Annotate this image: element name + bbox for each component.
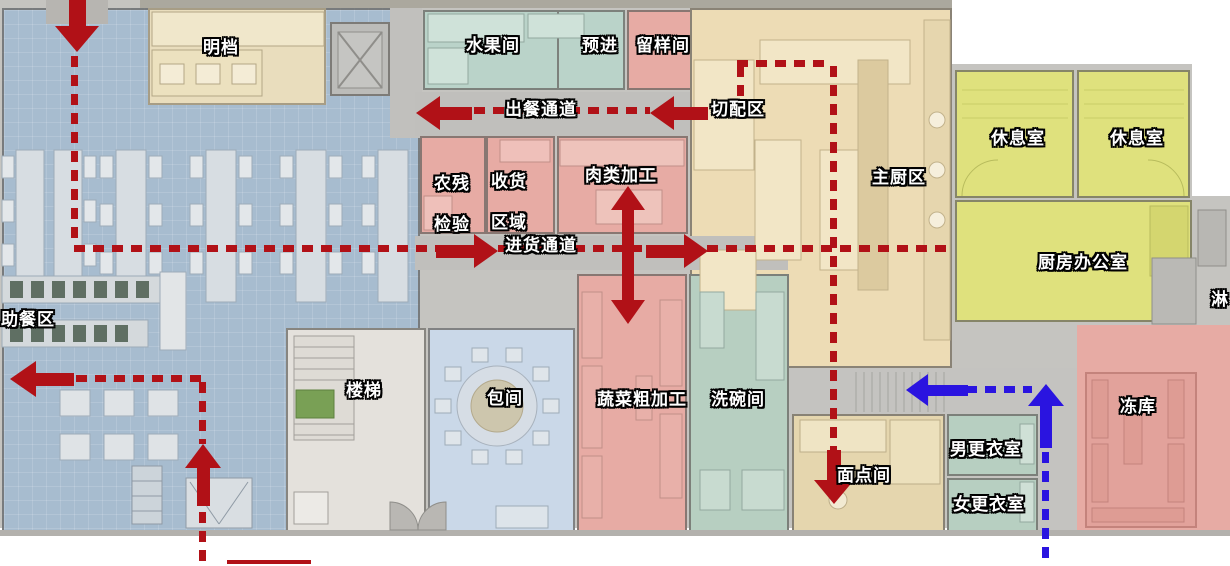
room-label-kitchen-office: 厨房办公室 xyxy=(1038,253,1128,273)
room-label-sample-retention: 留样间 xyxy=(636,36,690,56)
wall-fruit-divider xyxy=(557,12,559,88)
room-label-pastry: 面点间 xyxy=(837,466,891,486)
room-label-dishwashing: 洗碗间 xyxy=(711,390,765,410)
room-label-stairs: 楼梯 xyxy=(346,381,382,401)
zone-label-main-kitchen: 主厨区 xyxy=(872,168,926,188)
room-label-meat: 肉类加工 xyxy=(585,166,657,186)
blue-dashed-horizontal xyxy=(966,386,1032,393)
red-dashed-dining-horizontal xyxy=(76,375,202,382)
room-label-fruit: 水果间 xyxy=(466,36,520,56)
floor-plan: 明档 水果间 预进 留样间 出餐通道 切配区 农残 检验 收货 区域 肉类加工 … xyxy=(0,0,1230,566)
red-dashed-entry-vertical xyxy=(71,56,78,246)
room-label-men-changing: 男更衣室 xyxy=(950,440,1022,460)
room-label-open-counter: 明档 xyxy=(203,38,239,58)
blue-arrow-left-icon xyxy=(906,374,968,406)
red-dashed-cutting-top xyxy=(737,60,831,67)
red-arrow-left-serving-1-icon xyxy=(416,96,472,130)
room-label-private-dining: 包间 xyxy=(487,389,523,409)
room-label-rest-1: 休息室 xyxy=(991,129,1045,149)
red-dashed-kitchen-vertical xyxy=(830,66,837,452)
red-arrow-left-serving-2-icon xyxy=(650,96,708,130)
blue-arrow-up-icon xyxy=(1028,384,1064,448)
red-arrow-left-dining-icon xyxy=(10,361,74,397)
room-private-dining xyxy=(428,328,575,534)
room-stairs xyxy=(286,328,426,534)
blue-dashed-vertical xyxy=(1042,452,1049,566)
zone-label-dining-assist: 助餐区 xyxy=(1,310,55,330)
room-label-rest-2: 休息室 xyxy=(1110,129,1164,149)
room-label-vegetable: 蔬菜粗加工 xyxy=(597,390,687,410)
corridor-label-serving: 出餐通道 xyxy=(505,100,577,120)
room-label-receiving-line1: 收货 xyxy=(491,172,527,192)
elevator xyxy=(330,22,390,96)
room-label-pesticide-line2: 检验 xyxy=(434,215,470,235)
red-arrow-right-goods-1-icon xyxy=(436,234,498,268)
room-label-freezer: 冻库 xyxy=(1120,397,1156,417)
zone-label-cutting: 切配区 xyxy=(711,100,765,120)
wall-top xyxy=(140,0,952,8)
red-dashed-goods-horizontal-left xyxy=(74,245,436,252)
red-arrow-right-goods-2-icon xyxy=(646,234,708,268)
legend-red-line xyxy=(227,560,311,564)
red-arrow-updown-meat-icon xyxy=(611,186,645,324)
red-arrow-down-entry-icon xyxy=(55,0,99,52)
room-label-women-changing: 女更衣室 xyxy=(953,495,1025,515)
room-label-shower: 淋 xyxy=(1211,290,1229,310)
room-label-receiving-line2: 区域 xyxy=(491,213,527,233)
red-arrow-up-dining-icon xyxy=(185,444,221,506)
room-freezer-inner xyxy=(1085,372,1197,528)
red-dashed-dining-vertical-upper xyxy=(199,382,206,444)
corridor-label-goods: 进货通道 xyxy=(505,236,577,256)
red-dashed-dining-vertical-lower xyxy=(199,512,206,566)
room-label-pre-entry: 预进 xyxy=(582,36,618,56)
room-label-pesticide-line1: 农残 xyxy=(434,174,470,194)
